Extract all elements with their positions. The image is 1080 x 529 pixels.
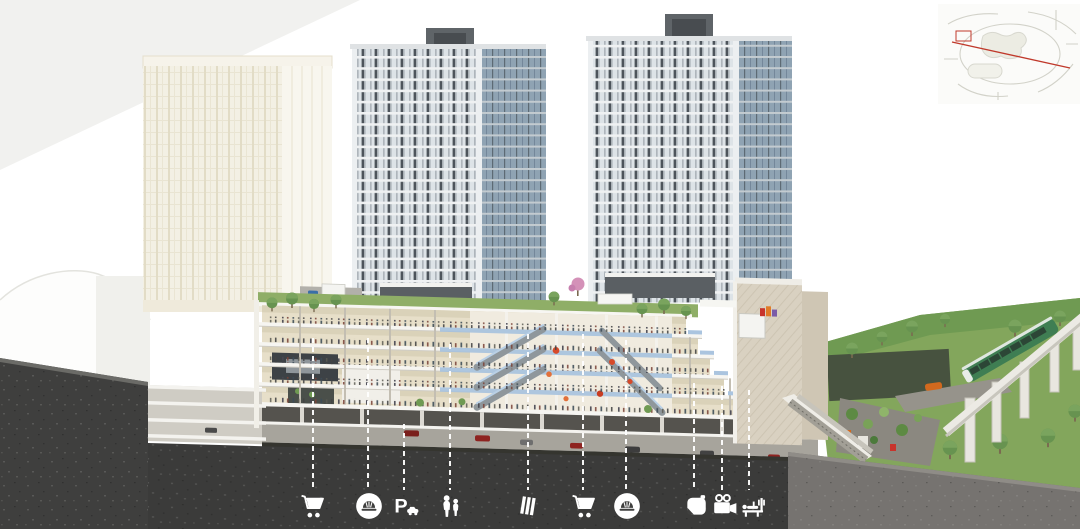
residential-tower-right — [586, 14, 792, 303]
residential-tower-left — [350, 28, 546, 311]
context-office-tower — [143, 56, 332, 312]
earth-cut-left — [0, 358, 148, 529]
basement-levels-left — [148, 385, 266, 444]
site-key-map — [938, 4, 1080, 104]
scene — [0, 0, 1080, 529]
sectional-perspective-rendering: P — [0, 0, 1080, 529]
